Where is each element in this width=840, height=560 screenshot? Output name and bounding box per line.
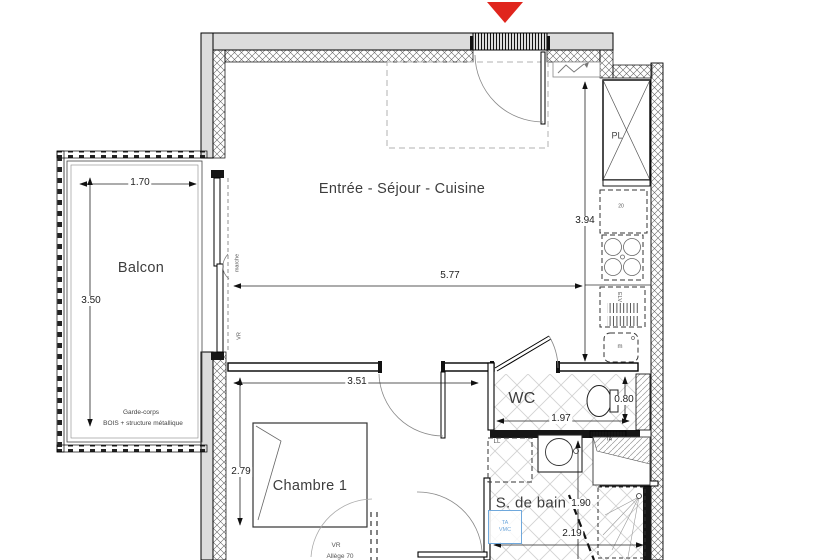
vmc-vent-box: TA VMC <box>488 510 522 544</box>
note-window-sill: Allège 70 <box>326 554 353 560</box>
note-washer-ll: LL <box>494 439 501 445</box>
note-sink-elv: ELV <box>615 292 621 302</box>
note-step-marche: marche <box>235 254 241 272</box>
closet-pl <box>603 80 650 186</box>
note-railing-line2: BOIS + structure métallique <box>103 421 183 428</box>
vmc-label-line1: TA <box>502 521 509 527</box>
dim-wc-width: 1.97 <box>549 414 572 424</box>
dim-living-height: 3.94 <box>573 216 596 226</box>
room-label-balcony: Balcon <box>118 261 164 276</box>
soffit-dashed-outline <box>387 62 548 148</box>
entrance-arrow-icon <box>487 2 523 23</box>
note-appliance-m: m <box>618 344 623 350</box>
room-label-living: Entrée - Séjour - Cuisine <box>319 182 485 197</box>
dim-balcony-width: 1.70 <box>128 178 151 188</box>
bed <box>253 423 367 527</box>
dim-bedroom-height: 2.79 <box>229 467 252 477</box>
dim-wc-depth: 0.80 <box>612 395 635 405</box>
dim-bathroom-height: 1.90 <box>569 499 592 509</box>
bay-window <box>211 170 229 360</box>
dim-bathroom-width: 2.19 <box>560 529 583 539</box>
dim-balcony-height: 3.50 <box>79 296 102 306</box>
room-label-bathroom: S. de bain <box>496 496 567 511</box>
room-label-bedroom: Chambre 1 <box>273 479 347 494</box>
floor-plan: Entrée - Séjour - Cuisine Balcon Chambre… <box>0 0 840 560</box>
note-closet-pl: PL <box>611 132 622 141</box>
floor-plan-drawing <box>0 0 840 560</box>
note-fridge: 20 <box>618 205 624 210</box>
dim-bedroom-width: 3.51 <box>345 377 368 387</box>
note-shutter-window: VR <box>331 543 340 550</box>
dim-living-width: 5.77 <box>438 271 461 281</box>
note-shutter-bay: VR <box>237 332 243 340</box>
note-railing-line1: Garde-corps <box>123 410 159 417</box>
vmc-label-line2: VMC <box>499 528 511 534</box>
room-label-wc: WC <box>508 391 535 407</box>
note-duct-ta: TA <box>606 438 612 443</box>
electrical-symbol-icon <box>553 62 600 77</box>
